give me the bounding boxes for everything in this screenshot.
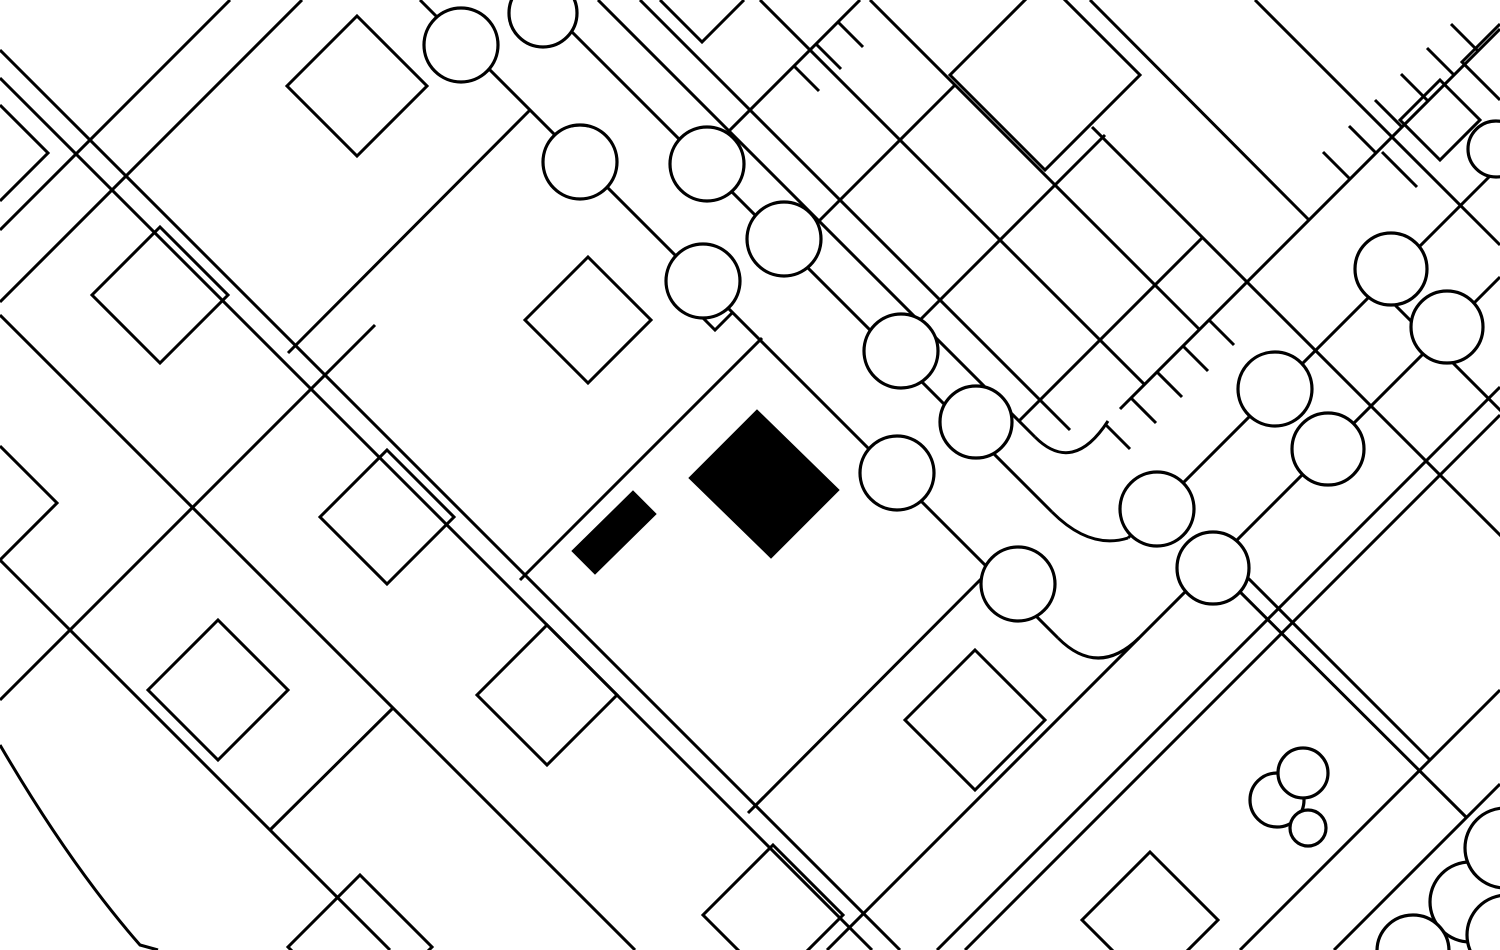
black-building (572, 491, 656, 574)
parcel-line (0, 0, 230, 230)
tree-circle (864, 314, 938, 388)
tree-circle (666, 244, 740, 318)
tree-circle (543, 125, 617, 199)
building-outline (320, 450, 454, 584)
building-outline (525, 257, 651, 383)
tree-circle (981, 547, 1055, 621)
site-plan-map (0, 0, 1500, 950)
parcel-line (1105, 424, 1130, 449)
tree-circle (1177, 532, 1249, 604)
tree-circle (1468, 121, 1500, 177)
street-curves (0, 421, 1139, 950)
parcel-line (729, 0, 860, 131)
parcel-line (965, 415, 1500, 950)
parcel-corner-line (660, 0, 744, 42)
parcel-line (1213, 565, 1466, 817)
parcel-line (270, 708, 393, 830)
tree-circle (1355, 233, 1427, 305)
parcel-line (748, 570, 990, 813)
parcel-line (794, 66, 819, 91)
tree-circle (1238, 352, 1312, 426)
parcel-line (838, 22, 863, 47)
tree-circle (747, 202, 821, 276)
parcel-line (1349, 126, 1376, 153)
parcel-line (1183, 346, 1208, 371)
parcel-line (288, 110, 530, 353)
parcel-line (937, 387, 1500, 950)
parcel-line (0, 325, 375, 700)
tree-circle (509, 0, 577, 47)
parcel-line (1131, 398, 1156, 423)
building-outline (148, 620, 288, 760)
building-outline (1082, 852, 1218, 950)
parcel-line (919, 135, 1105, 321)
building-outline (905, 650, 1045, 790)
building-outline (703, 845, 843, 950)
parcel-line (1323, 152, 1350, 179)
parcel-line (760, 0, 1145, 385)
parcel-line (1090, 0, 1309, 220)
building-outline (92, 227, 228, 363)
parcel-line (1157, 372, 1182, 397)
parcel-line (1427, 48, 1454, 75)
parcel-line (0, 560, 390, 950)
parcel-line (819, 85, 955, 221)
street-curve (1058, 638, 1139, 658)
parcel-line (640, 0, 1070, 430)
parcel-line (1451, 24, 1478, 51)
map-canvas (0, 0, 1500, 950)
street-curve (1052, 512, 1128, 541)
street-curve (0, 745, 158, 950)
parcel-line (420, 0, 1058, 638)
parcel-line (1223, 553, 1430, 760)
tree-circle (1290, 810, 1326, 846)
black-building (689, 410, 839, 558)
tree-circle (424, 8, 498, 82)
trees (424, 0, 1500, 950)
tree-circle (1292, 413, 1364, 485)
tree-circle (1411, 291, 1483, 363)
parcel-line (1019, 237, 1203, 421)
building-outline (287, 16, 427, 156)
tree-circle (1278, 748, 1328, 798)
tree-circle (1120, 472, 1194, 546)
parcel-line (816, 44, 841, 69)
filled-buildings (572, 410, 839, 574)
tree-circle (860, 436, 934, 510)
building-outline (288, 875, 432, 950)
parcel-corner-line (0, 446, 57, 560)
street-curve (1035, 421, 1108, 453)
parcel-line (1209, 320, 1234, 345)
tree-circle (940, 386, 1012, 458)
tree-circle (670, 127, 744, 201)
